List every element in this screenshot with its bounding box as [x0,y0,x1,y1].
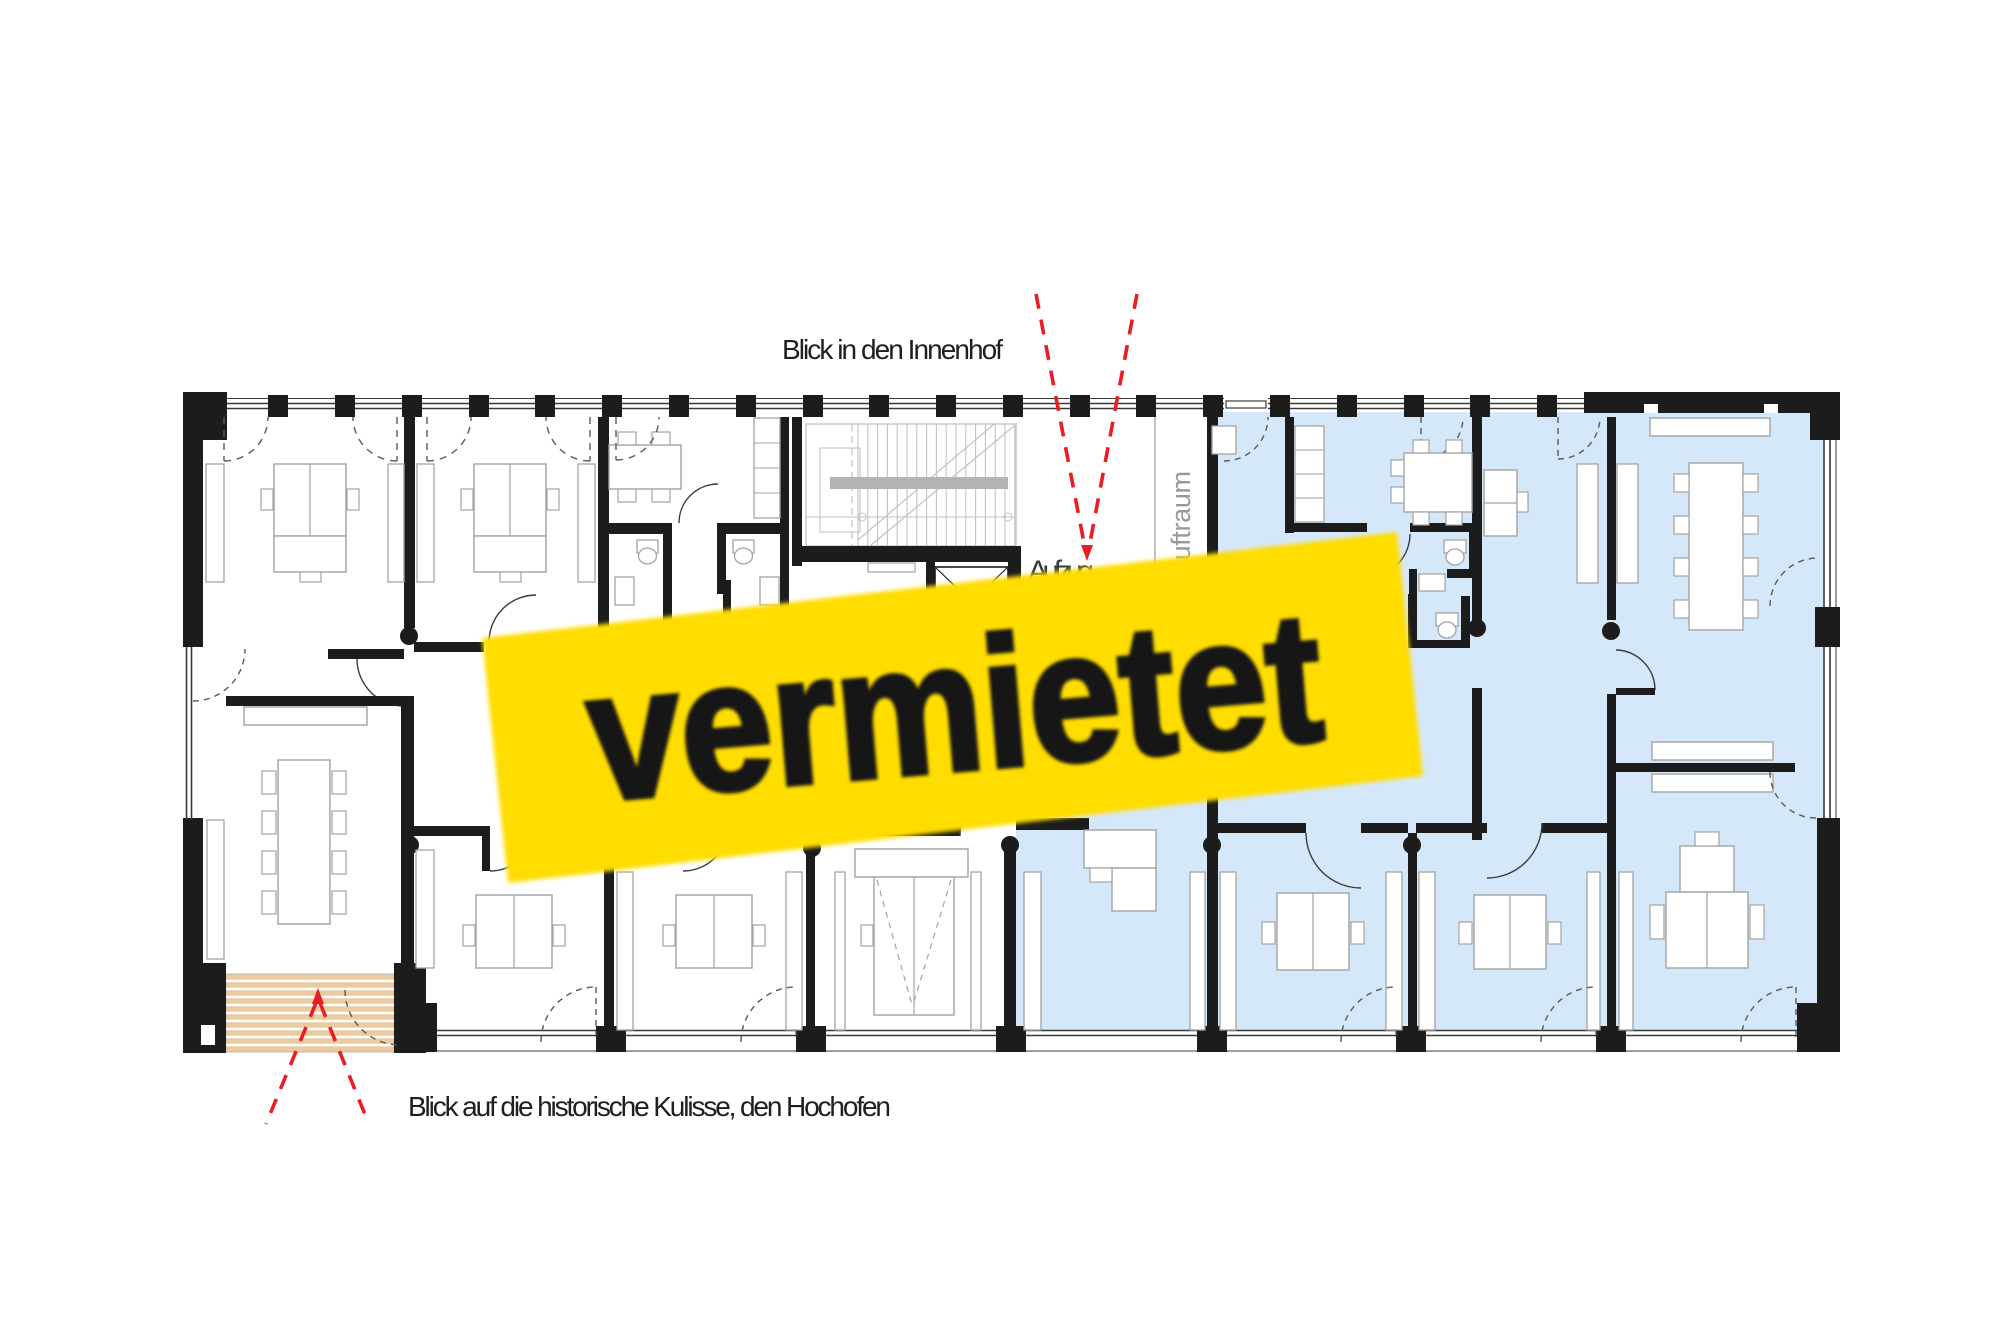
svg-text:Blick in den Innenhof: Blick in den Innenhof [782,334,1003,365]
svg-text:Blick auf die historische Kuli: Blick auf die historische Kulisse, den H… [408,1091,891,1122]
